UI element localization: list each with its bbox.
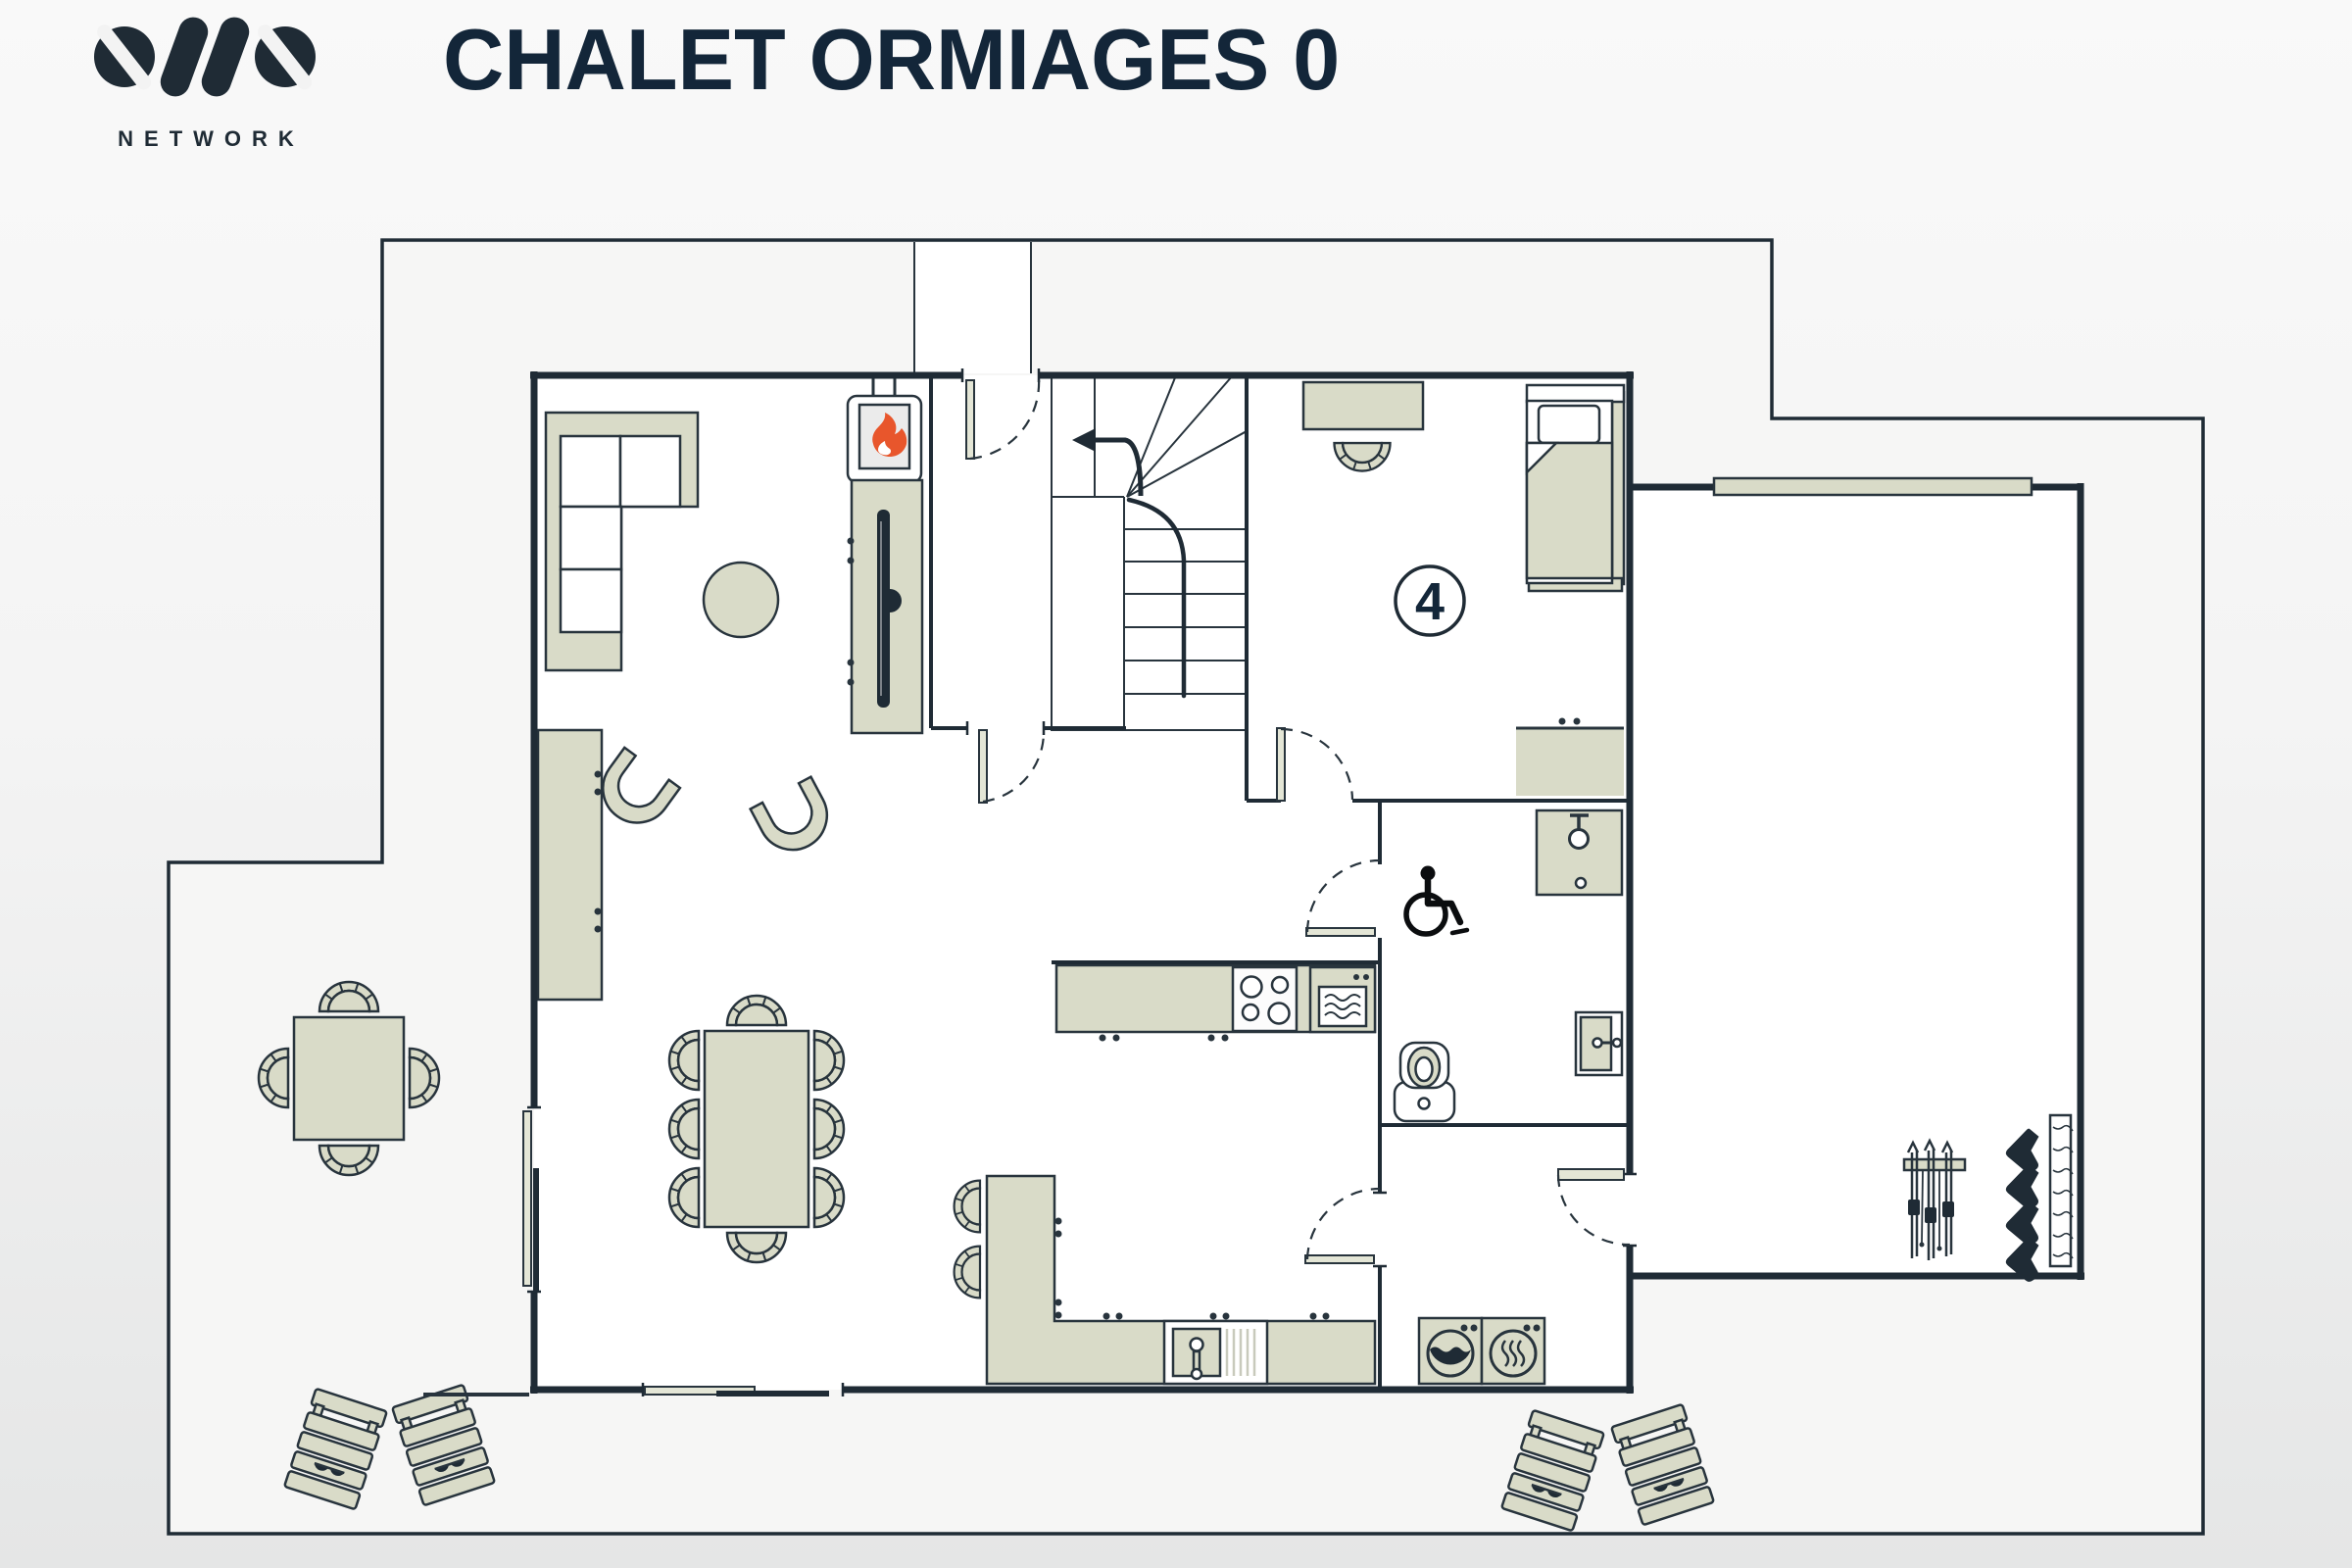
room-number-badge: 4 xyxy=(1396,566,1464,635)
single-bed xyxy=(1527,385,1624,591)
oven-icon xyxy=(1310,967,1375,1032)
outdoor-table xyxy=(294,1017,404,1140)
ski-room-window xyxy=(1714,478,2032,495)
coffee-table xyxy=(704,563,778,637)
hob-burners-icon xyxy=(1233,967,1297,1031)
sideboard xyxy=(538,730,602,1000)
bedroom-number: 4 xyxy=(1415,572,1445,631)
toilet-icon xyxy=(1395,1043,1454,1121)
dining-set xyxy=(669,996,844,1262)
tv-console xyxy=(848,480,923,733)
main-floor xyxy=(534,375,1630,1390)
bathroom-cabinet xyxy=(1576,1012,1622,1075)
floor-plan: 4 xyxy=(0,0,2352,1568)
chest-of-drawers xyxy=(1516,718,1624,797)
washing-machine-icon xyxy=(1419,1318,1482,1384)
dining-table xyxy=(705,1031,808,1227)
entrance-porch xyxy=(914,242,1031,373)
laundry xyxy=(1419,1318,1544,1384)
sink-icon xyxy=(1164,1321,1267,1384)
desk xyxy=(1303,382,1423,429)
tumble-dryer-heat-icon xyxy=(1482,1318,1544,1384)
shower-icon xyxy=(1537,810,1622,895)
